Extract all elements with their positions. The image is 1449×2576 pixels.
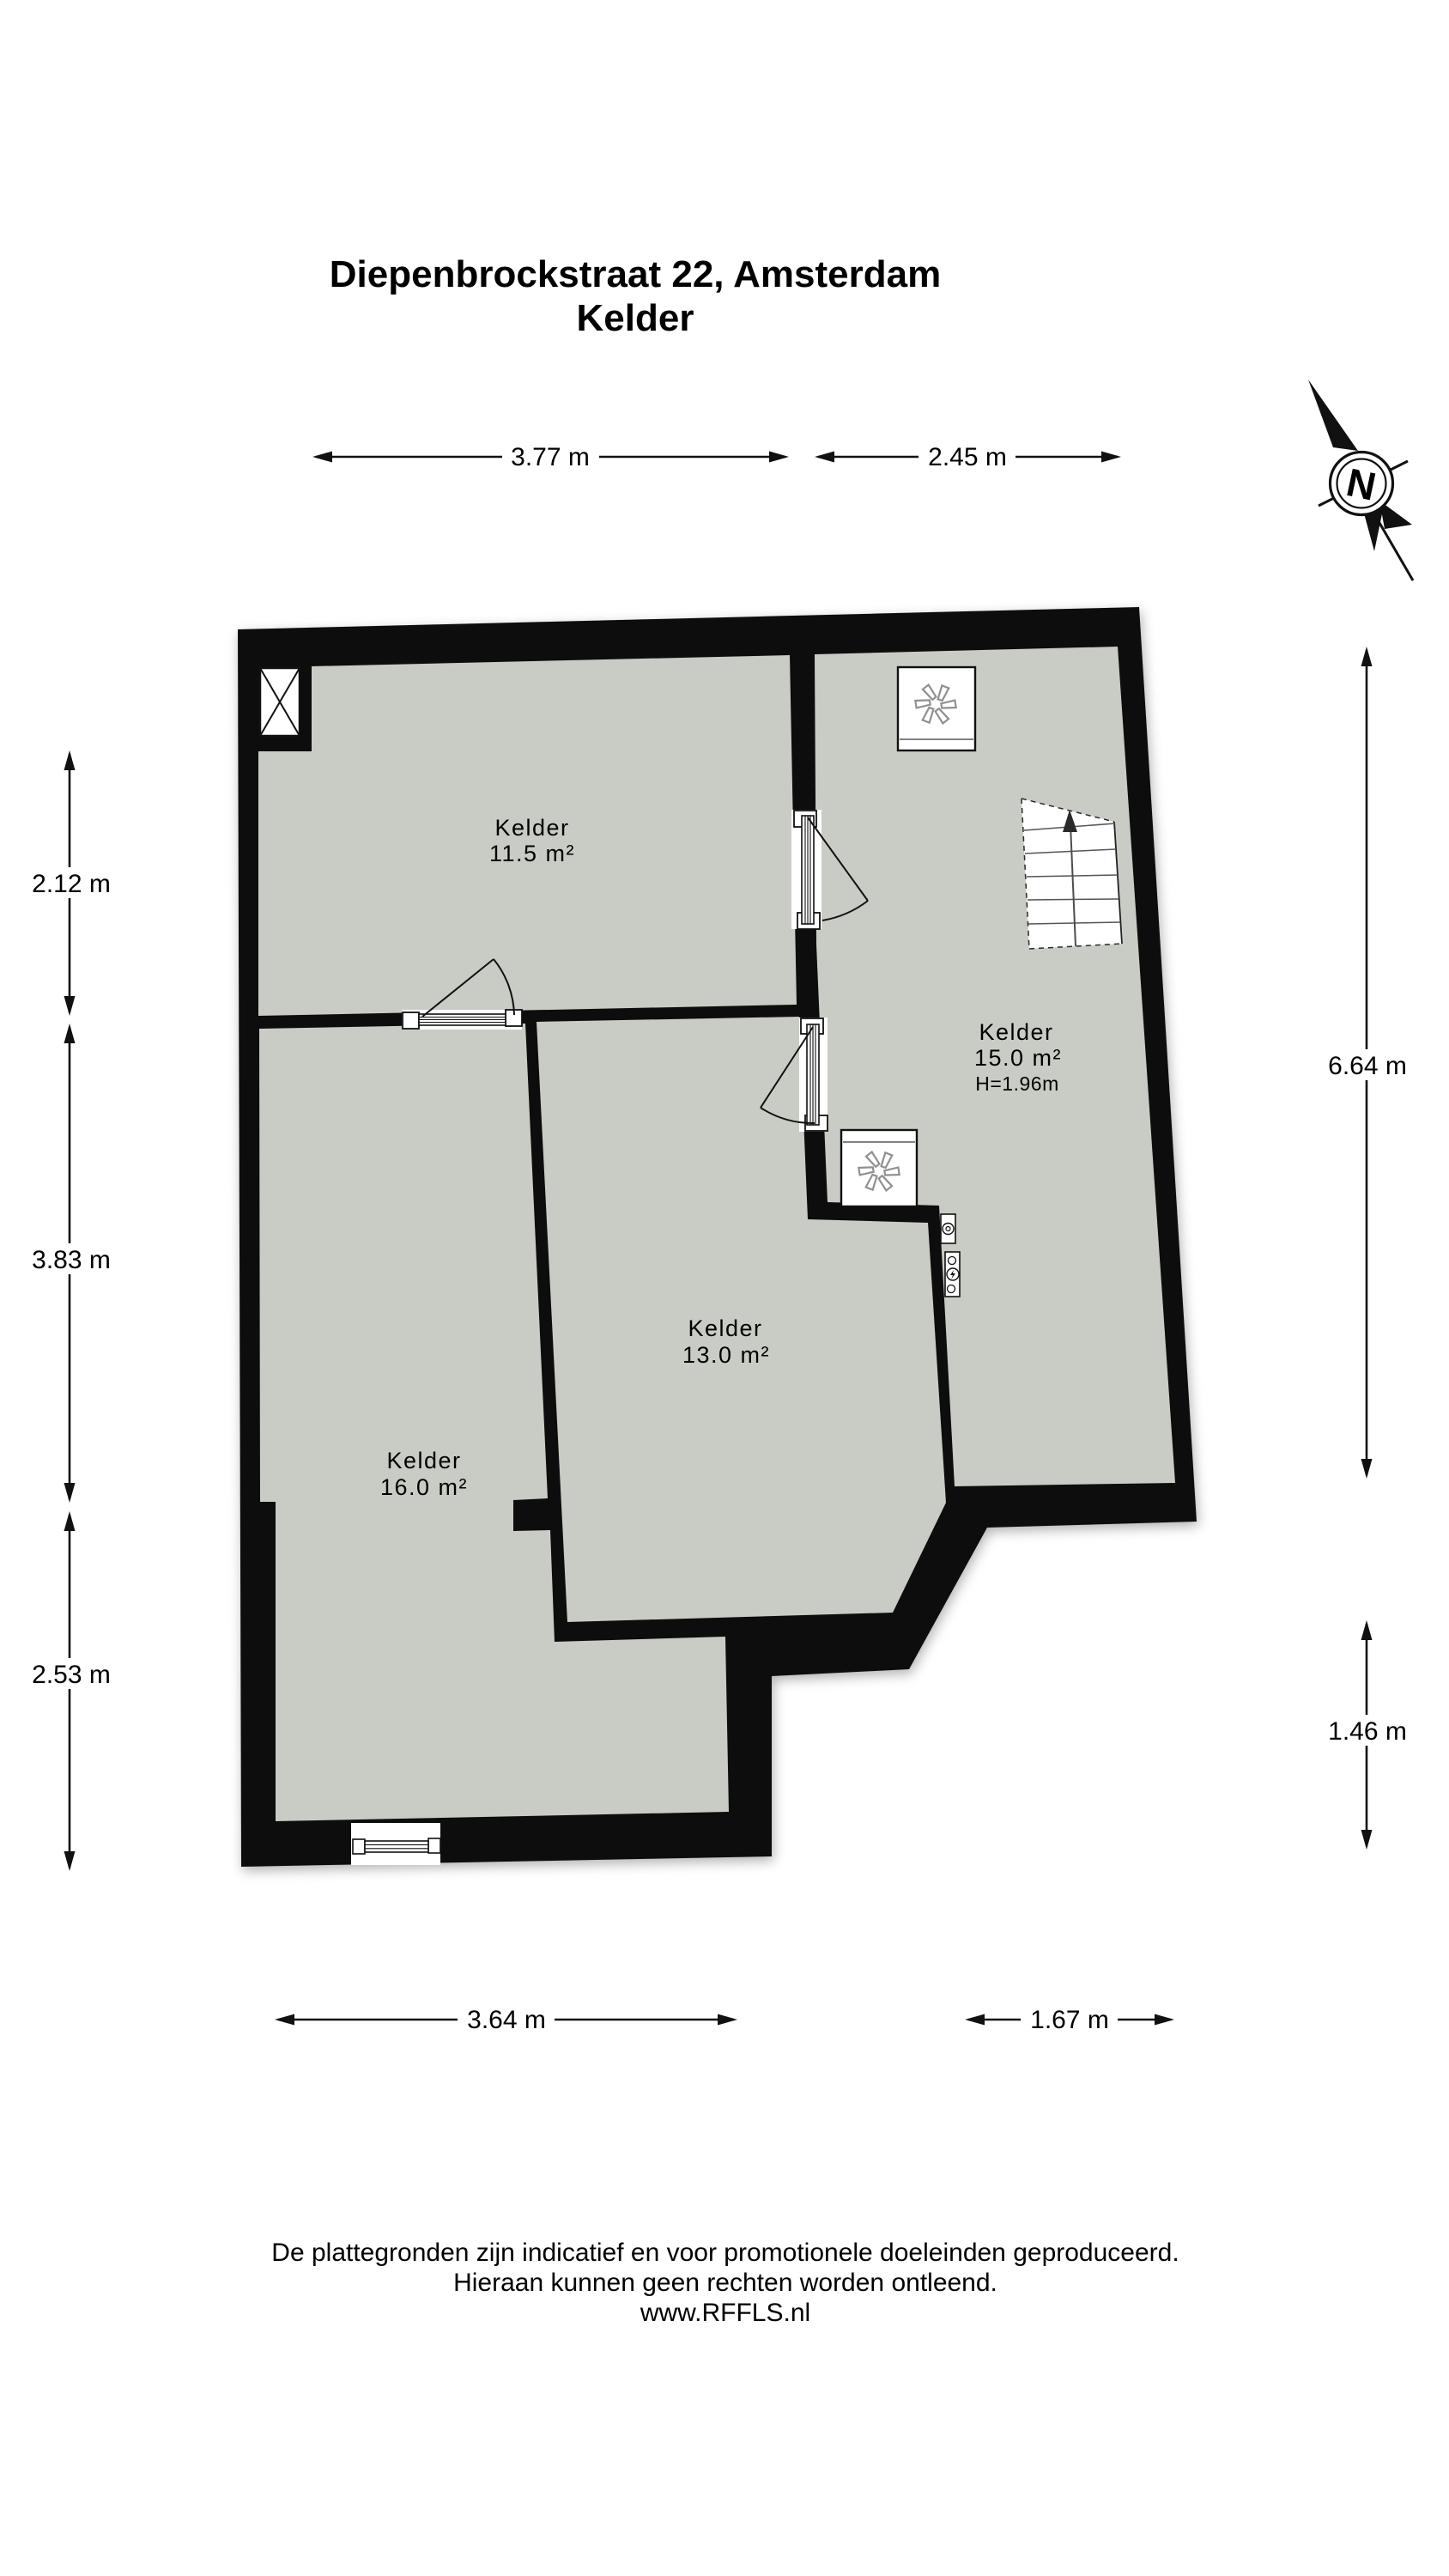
svg-text:De plattegronden zijn indicati: De plattegronden zijn indicatief en voor…: [271, 2239, 1179, 2267]
svg-text:1.46 m: 1.46 m: [1328, 1717, 1407, 1746]
svg-text:2.12 m: 2.12 m: [32, 870, 111, 898]
svg-text:2.53 m: 2.53 m: [32, 1661, 111, 1689]
svg-text:11.5 m²: 11.5 m²: [489, 841, 575, 866]
svg-text:Kelder: Kelder: [979, 1019, 1053, 1045]
svg-text:3.64 m: 3.64 m: [467, 2006, 546, 2034]
svg-text:16.0 m²: 16.0 m²: [380, 1474, 468, 1500]
svg-text:3.77 m: 3.77 m: [511, 443, 590, 471]
svg-text:Kelder: Kelder: [494, 815, 569, 841]
svg-text:Kelder: Kelder: [577, 297, 694, 339]
svg-text:3.83 m: 3.83 m: [32, 1246, 111, 1274]
svg-text:www.RFFLS.nl: www.RFFLS.nl: [640, 2299, 810, 2327]
svg-text:Diepenbrockstraat 22, Amsterda: Diepenbrockstraat 22, Amsterdam: [330, 253, 941, 295]
svg-text:15.0 m²: 15.0 m²: [974, 1045, 1062, 1071]
svg-text:Kelder: Kelder: [386, 1448, 461, 1473]
svg-text:1.67 m: 1.67 m: [1030, 2006, 1109, 2034]
svg-text:2.45 m: 2.45 m: [928, 443, 1007, 471]
svg-text:6.64 m: 6.64 m: [1328, 1052, 1407, 1080]
svg-text:H=1.96m: H=1.96m: [975, 1072, 1058, 1095]
svg-text:Kelder: Kelder: [688, 1315, 762, 1341]
svg-text:13.0 m²: 13.0 m²: [682, 1342, 770, 1368]
svg-text:Hieraan kunnen geen rechten wo: Hieraan kunnen geen rechten worden ontle…: [453, 2269, 997, 2297]
